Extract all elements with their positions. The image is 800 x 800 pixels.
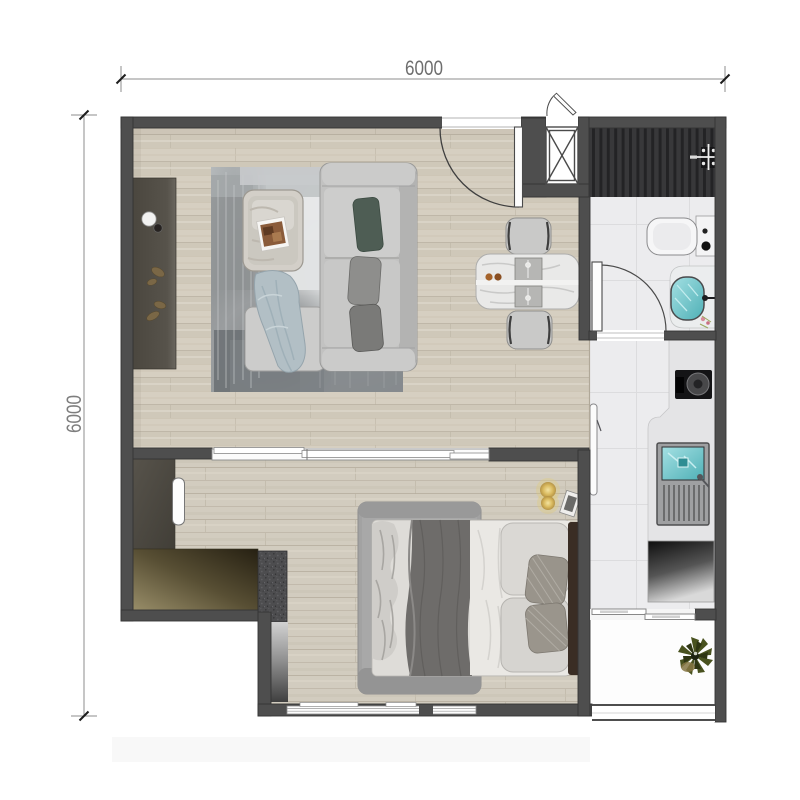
svg-text:6000: 6000 bbox=[405, 57, 443, 80]
svg-text:6000: 6000 bbox=[63, 395, 86, 433]
